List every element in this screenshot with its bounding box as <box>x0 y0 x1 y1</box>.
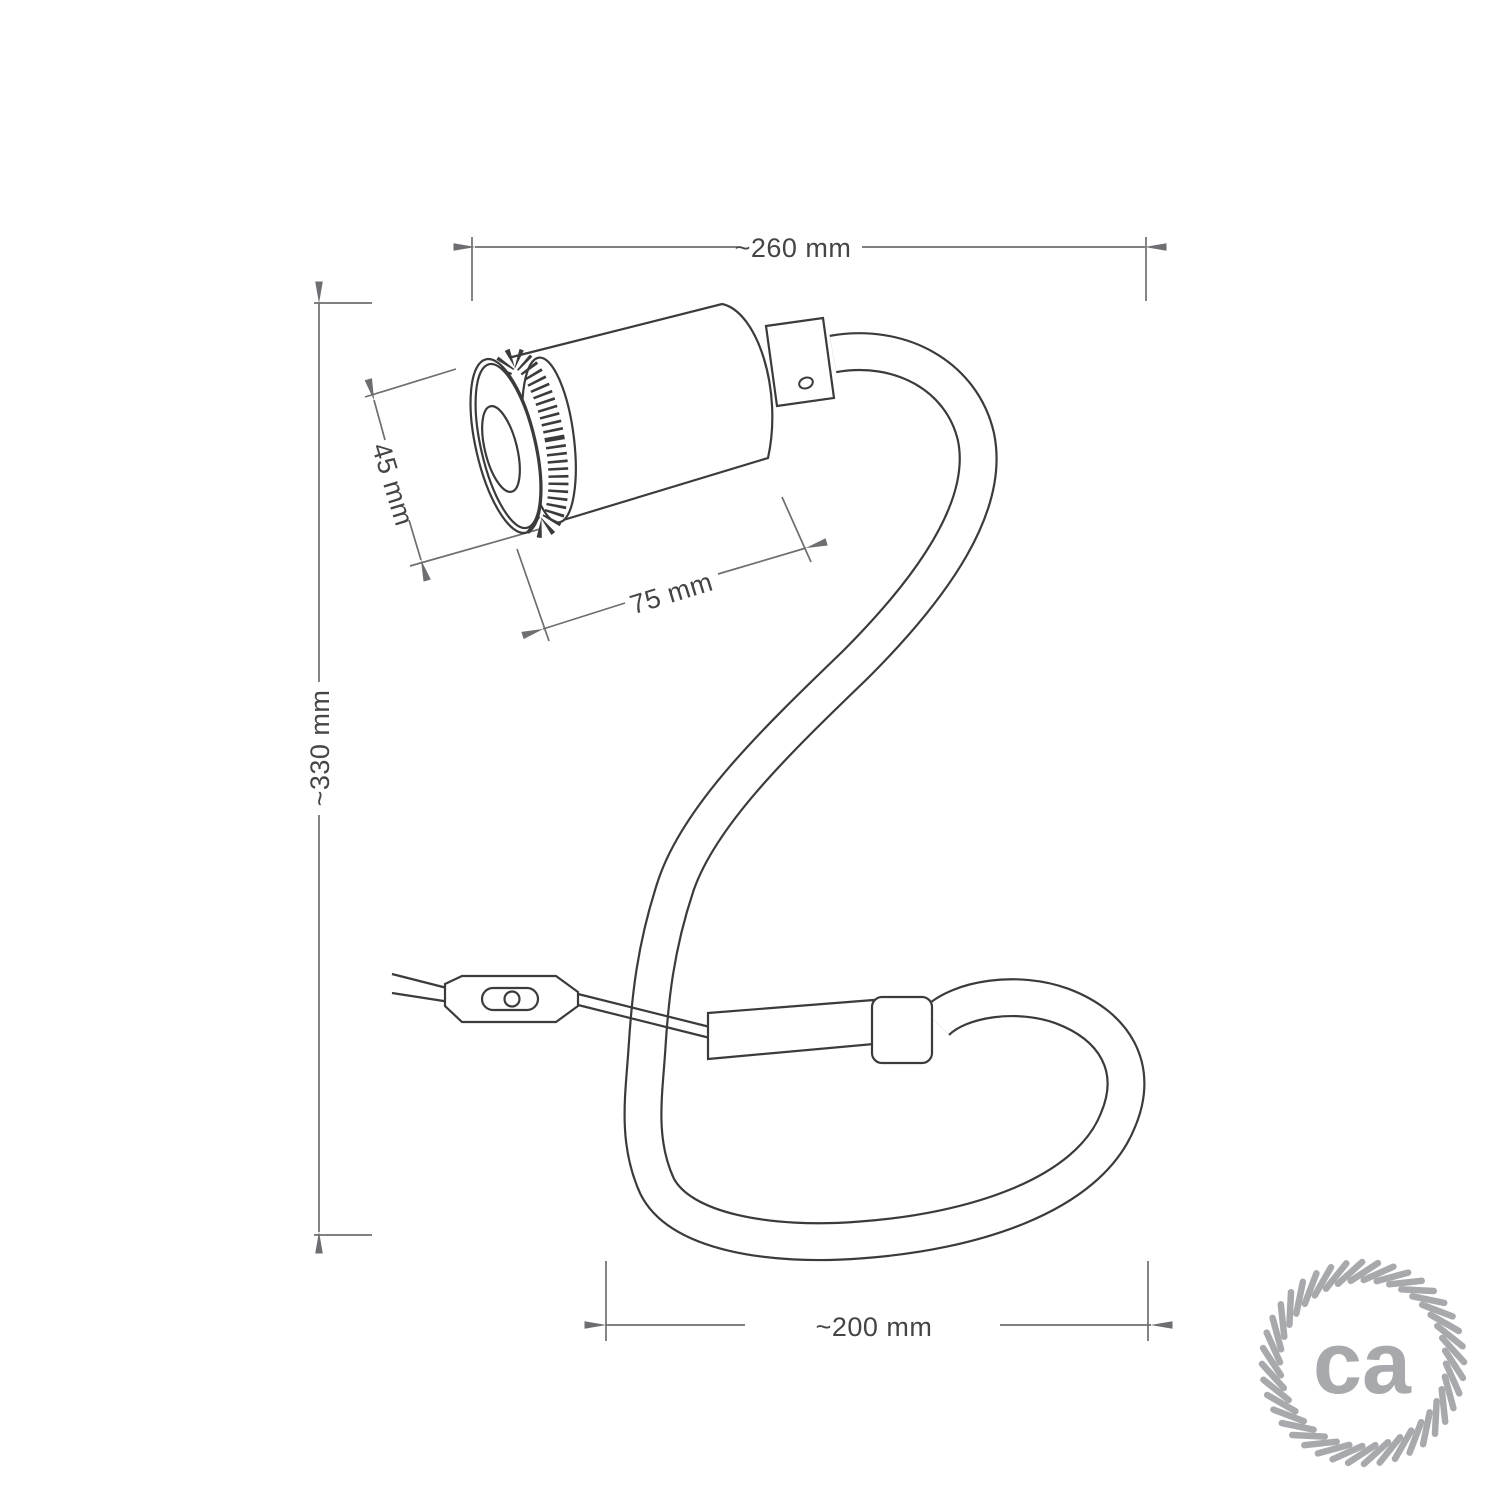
dim-overall-width-label: ~260 mm <box>735 233 852 263</box>
dim-overall-height-label: ~330 mm <box>305 690 335 807</box>
switch-button-icon <box>505 992 520 1007</box>
dimension-diagram: ~260 mm ~330 mm 45 mm 75 mm ~200 mm <box>0 0 1500 1500</box>
gooseneck-tube <box>643 352 1126 1242</box>
dim-base-loop-width-label: ~200 mm <box>816 1312 933 1342</box>
lamp-head <box>457 304 773 539</box>
connector-block <box>766 318 834 406</box>
inline-switch <box>445 976 578 1022</box>
lamp-technical-drawing: ~260 mm ~330 mm 45 mm 75 mm ~200 mm <box>0 0 1500 1500</box>
brand-logo: ca <box>1262 1262 1464 1464</box>
dimension-overall-width: ~260 mm <box>472 233 1146 301</box>
dim-spot-diameter-label: 45 mm <box>366 439 420 529</box>
logo-text: ca <box>1313 1313 1412 1412</box>
dim-spot-length-label: 75 mm <box>626 567 716 621</box>
cable-sleeve <box>708 1000 874 1059</box>
ferrule <box>872 997 932 1063</box>
dimension-overall-height: ~330 mm <box>305 303 372 1235</box>
dimension-base-loop-width: ~200 mm <box>606 1261 1151 1342</box>
